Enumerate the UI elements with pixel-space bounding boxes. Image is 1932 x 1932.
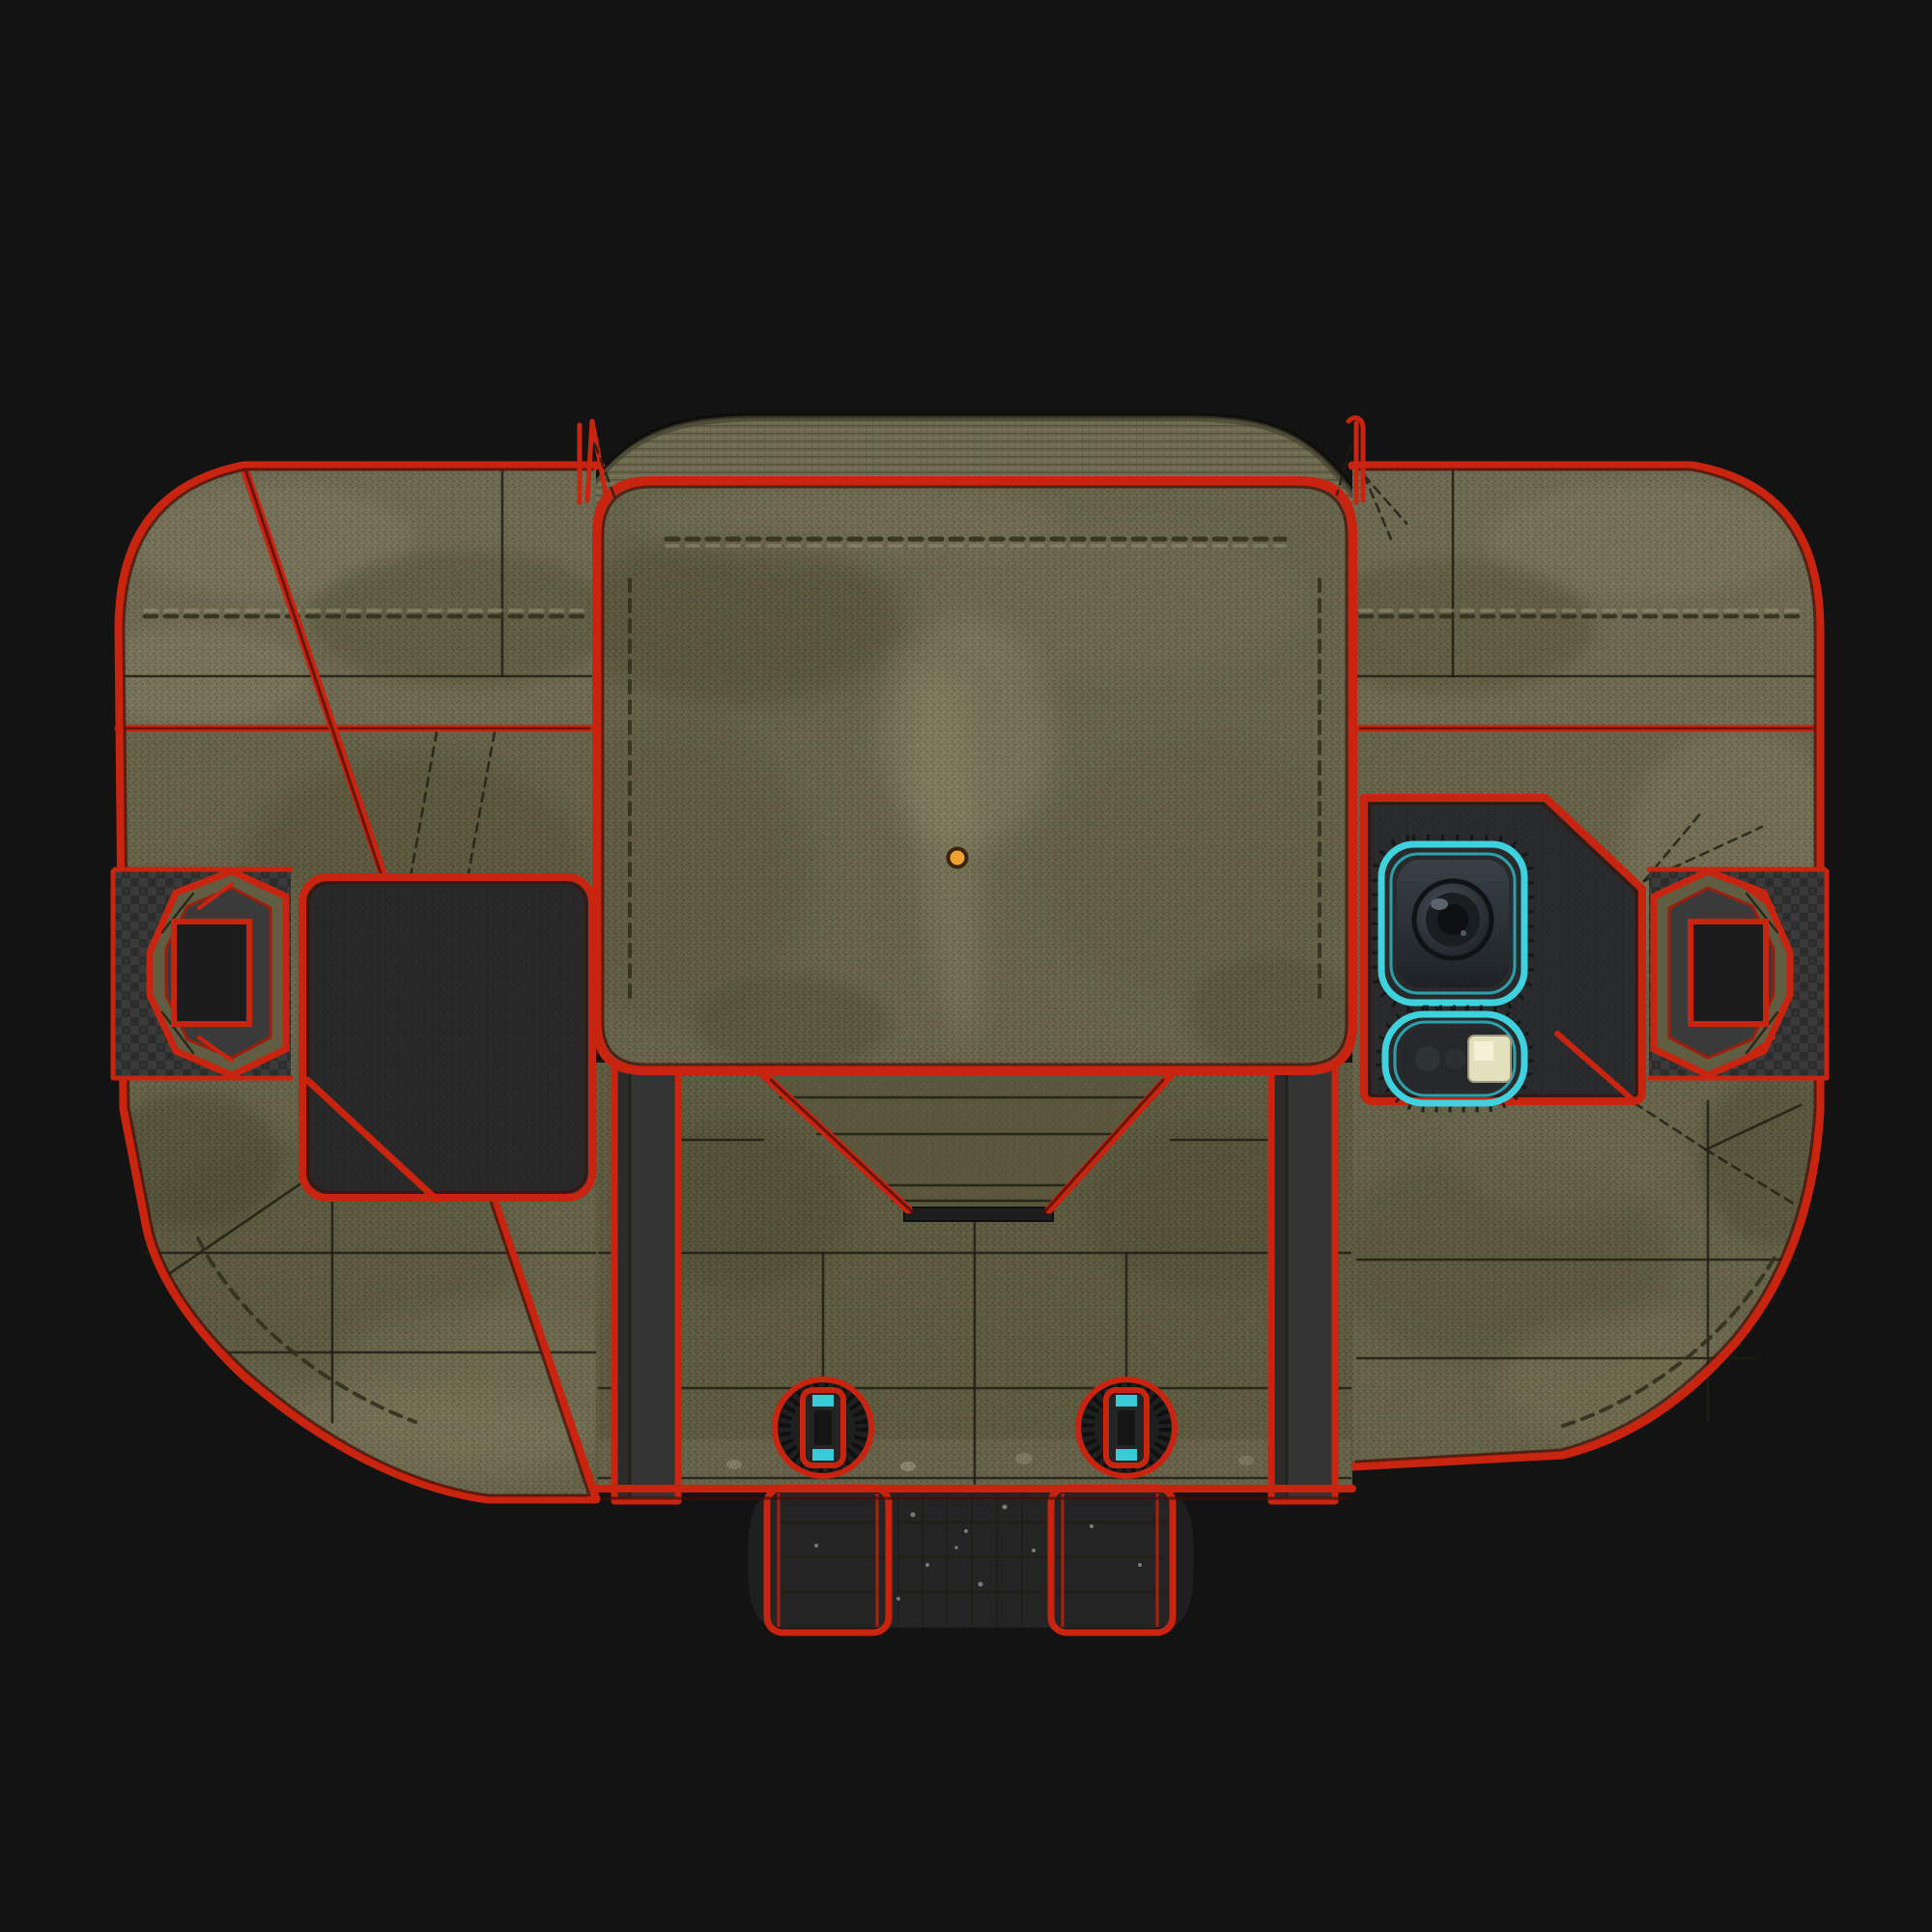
phone-camera-module[interactable]: phone-camera-module — [1376, 838, 1530, 1009]
flash-led-highlight — [1474, 1041, 1493, 1061]
viewport-canvas[interactable]: top-webbing-strap left-wing-panel — [0, 0, 1932, 1932]
left-pocket-window[interactable]: left-pocket-window — [302, 877, 592, 1200]
snap-left-cyan-top — [812, 1395, 834, 1406]
flash-sensor-2 — [1445, 1048, 1466, 1069]
left-side-buckle[interactable]: left-side-buckle — [113, 869, 291, 1078]
flash-sensor-1 — [1415, 1046, 1440, 1071]
viewport-3d[interactable]: top-webbing-strap left-wing-panel — [0, 0, 1932, 1932]
camera-lens-highlight — [1431, 898, 1448, 910]
snap-right-cyan-top — [1116, 1395, 1137, 1406]
left-snap-grommet[interactable]: left-snap-grommet — [775, 1379, 871, 1476]
front-flap[interactable]: front-flap — [541, 481, 1362, 1072]
right-side-buckle[interactable]: right-side-buckle — [1649, 869, 1827, 1078]
snap-right-cyan-bottom — [1116, 1449, 1137, 1461]
flap-texture — [541, 481, 1362, 1072]
funnel-mouth — [904, 1207, 1053, 1221]
right-vertical-strap[interactable]: right-vertical-strap — [1271, 1065, 1335, 1501]
bottom-roll-strap[interactable]: bottom-roll-strap — [748, 1488, 1194, 1633]
snap-left-slot — [814, 1410, 832, 1445]
camera-lens-glint — [1461, 930, 1466, 936]
left-vertical-strap[interactable]: left-vertical-strap — [614, 1065, 678, 1501]
window-left-noise — [314, 889, 581, 1186]
vstrap-left-shade — [618, 1068, 630, 1497]
snap-right-slot — [1118, 1410, 1135, 1445]
buckle-left-slot — [174, 922, 249, 1024]
vstrap-right-shade — [1275, 1068, 1287, 1497]
snap-left-cyan-bottom — [812, 1449, 834, 1461]
buckle-right-slot — [1690, 922, 1766, 1024]
right-snap-grommet[interactable]: right-snap-grommet — [1078, 1379, 1175, 1476]
origin-point — [949, 849, 967, 867]
roll-body — [771, 1492, 1169, 1628]
